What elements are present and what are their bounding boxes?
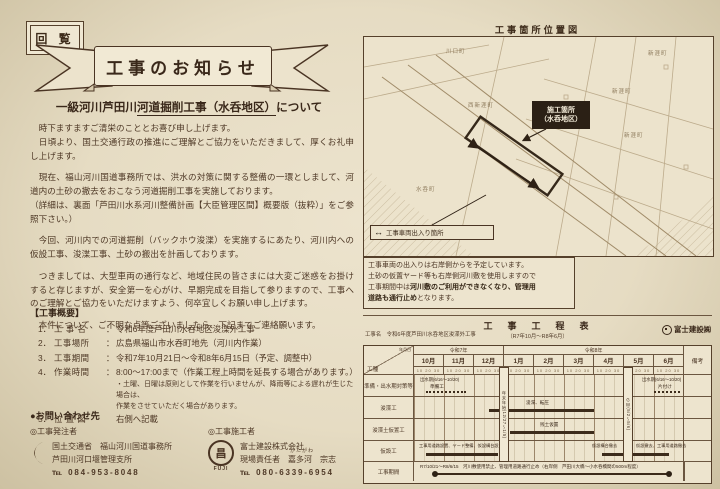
setup-bar [426, 453, 498, 456]
notice-banner: 工事のお知らせ [28, 42, 336, 96]
map-place-label: 水呑町 [416, 185, 436, 193]
fuji-logo-icon [662, 325, 672, 335]
contact-orderer: ◎工事発注者 国土交通省 福山河川国道事務所 芦田川河口堰管理支所 ℡ 084-… [30, 426, 208, 480]
overview-item-period: 3． 工事期間 ： 令和7年10月21日～令和8年6月15日（予定、調整中） [30, 351, 354, 365]
map-place-label: 新涯町 [648, 49, 668, 57]
item-value: 8:00～17:00まで（作業工程上時間を延長する場合があります。） [116, 365, 358, 379]
contractor-company: 富士建設株式会社 [240, 440, 336, 453]
setup-bar-label: 工事用道路設置、ヤード整備、仮設構台設置 [419, 443, 503, 449]
month-header: 2月 [534, 355, 564, 367]
row-label-dredging: 浚渫工 [364, 397, 414, 419]
flood-season-note-left: 出水期(6/16～10/20) [420, 377, 459, 383]
item-label: 作業時間 [54, 365, 104, 379]
paragraph-current-works: 現在、福山河川国道事務所では、洪水の対策に関する整備の一環としまして、河道内の土… [30, 171, 354, 226]
fuji-logo-icon: 昌 FUJI [208, 440, 234, 472]
contractor-phone: ℡ 080-6339-6954 [240, 466, 336, 479]
note-normal-text: となります。 [417, 295, 458, 302]
item-separator: ： [104, 351, 116, 365]
note-bold-text: 道路も通行止め [368, 295, 417, 302]
location-map: 川口町 新涯町 新涯町 西新涯町 新涯町 水呑町 施工箇所 （水呑地区） ↔ 工… [363, 36, 714, 257]
hours-note-line1: ・土曜、日曜は原則として作業を行いませんが、降雨等による遅れが生じた場合は、 [116, 380, 354, 402]
item-number: 4． [38, 365, 54, 379]
day-ticks: 10 20 30 [534, 367, 564, 375]
contact-heading: ●お問い合わせ先 [30, 408, 360, 422]
preparation-bar-label: 準備工 [430, 384, 444, 390]
month-header: 1月 [504, 355, 534, 367]
access-note-line3: 工事期間中は河川敷のご利用ができなくなり、管理用 [368, 283, 570, 294]
schedule-project-name: 工事名 令和6年度芦田川水呑地区浚渫外工事 [365, 330, 476, 338]
item-label: 工 事 名 [54, 322, 104, 336]
removal-b-label: 仮設撤去、工事用道路撤去 [636, 443, 686, 449]
row-label-stockpile: 浚渫土仮置工 [364, 419, 414, 441]
paragraph-plan: 今回、河川内での河道掘削（バックホウ浚渫）を実施するにあたり、河川内への仮設工事… [30, 234, 354, 262]
header-worktype-label: 工種 [367, 365, 378, 373]
paragraph-greeting: 時下ますますご清栄のこととお喜び申し上げます。 日頃より、国土交通行政の推進にご… [30, 122, 354, 163]
era-reiwa8: 令和8年 [504, 346, 684, 355]
map-sketch [364, 37, 713, 256]
contractor-heading: ◎工事施工者 [208, 426, 360, 437]
responsible-surname: 嘉多河 [288, 455, 312, 464]
item-value: 広島県福山市水呑町地先（河川内作業） [116, 336, 354, 350]
yearend-holiday-strip: 年末年始(12/27～1/5) [499, 367, 509, 462]
orderer-phone: ℡ 084-953-8048 [52, 466, 172, 479]
stockpile-bar-label: 残土仮置 [540, 422, 558, 428]
golden-week-strip: ＧＷ(5/2～5/6) [623, 367, 633, 462]
schedule-company: 富士建設㈱ [662, 324, 711, 335]
yearend-holiday-label: 年末年始(12/27～1/5) [501, 391, 507, 439]
fuji-logo-glyph: 昌 [208, 440, 234, 466]
stockpile-bar [510, 431, 594, 434]
day-ticks: 10 20 30 [414, 367, 444, 375]
responsible-furigana: かたがわ [290, 447, 314, 455]
period-text: R7/10/21～R8/6/15 河川敷使用禁止、管理用道路通行止め（右岸側 芦… [420, 464, 641, 470]
access-note-line1: 工事車両の出入りは右岸側からを予定しています。 [368, 261, 570, 272]
item-separator: ： [104, 322, 116, 336]
overview-item-location: 2． 工事場所 ： 広島県福山市水呑町地先（河川内作業） [30, 336, 354, 350]
map-place-label: 西新涯町 [468, 101, 494, 109]
day-ticks: 10 20 30 [564, 367, 594, 375]
page-title-underlined: 河道掘削工事（水呑地区） [137, 101, 276, 116]
period-bar [435, 473, 669, 475]
row-label-temporary-works: 仮設工 [364, 441, 414, 462]
month-header: 10月 [414, 355, 444, 367]
row-remarks [684, 375, 711, 397]
month-header: 11月 [444, 355, 474, 367]
orderer-branch: 芦田川河口堰管理支所 [52, 453, 172, 466]
month-header: 3月 [564, 355, 594, 367]
contractor-responsible: 現場責任者 かたがわ嘉多河 宗志 [240, 453, 336, 466]
row-remarks [684, 419, 711, 441]
row-label-period: 工事期間 [364, 462, 414, 481]
map-title: 工事箇所位置図 [363, 22, 712, 36]
page-title-pre: 一級河川芦田川 [56, 101, 137, 114]
row-label-preparation: 準備・出水期対策等 [364, 375, 414, 397]
removal-a-label: 仮設構台撤去 [592, 443, 617, 449]
overview-heading: 【工事概要】 [30, 306, 354, 319]
day-ticks: 10 20 30 [654, 367, 684, 375]
item-value: 令和7年10月21日～令和8年6月15日（予定、調整中） [116, 351, 354, 365]
cleanup-dotted-bar [654, 391, 680, 393]
access-note-line2: 土砂の仮置ヤード等も右岸側河川敷を使用しますので [368, 272, 570, 283]
item-label: 工事期間 [54, 351, 104, 365]
item-separator: ： [104, 365, 116, 379]
flood-season-note-right: 出水期(6/16～10/20) [642, 377, 681, 383]
golden-week-label: ＧＷ(5/2～5/6) [625, 398, 631, 431]
contact-contractor: ◎工事施工者 昌 FUJI 富士建設株式会社 現場責任者 かたがわ嘉多河 宗志 … [208, 426, 360, 480]
preparation-dotted-bar [426, 391, 466, 393]
note-bold-text: 河川敷のご利用ができなくなり、管理用 [410, 284, 536, 291]
page-title: 一級河川芦田川河道掘削工事（水呑地区）について [26, 99, 352, 115]
site-label-line1: 施工箇所 [547, 106, 575, 115]
banner-title-box: 工事のお知らせ [94, 46, 272, 86]
period-bar-end-dot [666, 471, 672, 477]
note-normal-text: 工事期間中は [368, 284, 410, 291]
map-place-label: 川口町 [446, 47, 466, 55]
current-works-text: 現在、福山河川国道事務所では、洪水の対策に関する整備の一環としまして、河道内の土… [30, 171, 354, 199]
removal-a-bar [602, 453, 624, 456]
schedule-grid: 年月日 工種 令和7年 令和8年 10月 11月 12月 1月 2月 3月 4月… [363, 345, 712, 484]
remarks-header: 備考 [684, 346, 711, 375]
item-number: 2． [38, 336, 54, 350]
current-works-detail: （詳細は、裏面「芦田川水系河川整備計画【大臣管理区間】概要版（抜粋）」をご参照下… [30, 199, 354, 227]
greeting-line1: 時下ますますご清栄のこととお喜び申し上げます。 [30, 122, 354, 136]
right-column: 工事箇所位置図 [360, 0, 716, 489]
item-label: 工事場所 [54, 336, 104, 350]
item-number: 3． [38, 351, 54, 365]
scanned-page: 回 覧 工事のお知らせ 一級河川芦田川河道掘削工事（水呑地区）について 時下ます… [0, 0, 720, 489]
map-place-label: 新涯町 [624, 131, 644, 139]
overview-item-hours: 4． 作業時間 ： 8:00～17:00まで（作業工程上時間を延長する場合があり… [30, 365, 354, 379]
row-remarks [684, 462, 711, 481]
day-ticks: 10 20 30 [444, 367, 474, 375]
contact-section: ●お問い合わせ先 ◎工事発注者 国土交通省 福山河川国道事務所 芦田川河口堰管理… [30, 408, 360, 480]
construction-schedule: 工 事 工 程 表 （R7年10月～R8年6月） 工事名 令和6年度芦田川水呑地… [363, 315, 712, 486]
era-reiwa7: 令和7年 [414, 346, 504, 355]
month-header: 6月 [654, 355, 684, 367]
page-title-post: について [276, 101, 322, 114]
orderer-office: 国土交通省 福山河川国道事務所 [52, 440, 172, 453]
dredging-bar-label: 浚渫、転圧 [526, 400, 549, 406]
construction-site-label: 施工箇所 （水呑地区） [532, 101, 590, 129]
banner-title: 工事のお知らせ [106, 54, 260, 79]
orderer-heading: ◎工事発注者 [30, 426, 208, 437]
day-ticks: 10 20 30 [594, 367, 624, 375]
item-value: 令和6年度芦田川水呑地区浚渫外工事 [116, 322, 354, 336]
site-label-line2: （水呑地区） [540, 115, 582, 124]
item-number: 1． [38, 322, 54, 336]
header-date-label: 年月日 [399, 347, 411, 353]
schedule-header-corner: 年月日 工種 [364, 346, 414, 375]
responsible-title: 現場責任者 [240, 455, 288, 464]
fuji-logo-text: FUJI [208, 466, 234, 472]
row-remarks [684, 441, 711, 462]
mlit-logo-icon [30, 440, 46, 466]
access-note-line4: 道路も通行止めとなります。 [368, 294, 570, 305]
double-arrow-icon: ↔ [374, 228, 383, 237]
period-bar-start-dot [432, 471, 438, 477]
access-notice-box: 工事車両の出入りは右岸側からを予定しています。 土砂の仮置ヤード等も右岸側河川敷… [363, 257, 575, 309]
legend-text: 工事車両出入り箇所 [386, 228, 444, 237]
row-remarks [684, 397, 711, 419]
row-cells-dredging [414, 397, 684, 419]
responsible-givenname: 宗志 [312, 455, 336, 464]
month-header: 5月 [624, 355, 654, 367]
greeting-line2: 日頃より、国土交通行政の推進にご理解とご協力をいただきまして、厚くお礼申し上げま… [30, 136, 354, 164]
schedule-company-name: 富士建設㈱ [674, 324, 711, 335]
vehicle-access-legend: ↔ 工事車両出入り箇所 [370, 225, 494, 240]
cleanup-bar-label: 片付け [658, 384, 672, 390]
paragraph-apology: つきましては、大型車両の通行など、地域住民の皆さまには大変ご迷惑をお掛けすると存… [30, 270, 354, 311]
month-header: 12月 [474, 355, 504, 367]
map-place-label: 新涯町 [612, 87, 632, 95]
removal-b-bar [632, 453, 669, 456]
item-separator: ： [104, 336, 116, 350]
overview-item-name: 1． 工 事 名 ： 令和6年度芦田川水呑地区浚渫外工事 [30, 322, 354, 336]
month-header: 4月 [594, 355, 624, 367]
